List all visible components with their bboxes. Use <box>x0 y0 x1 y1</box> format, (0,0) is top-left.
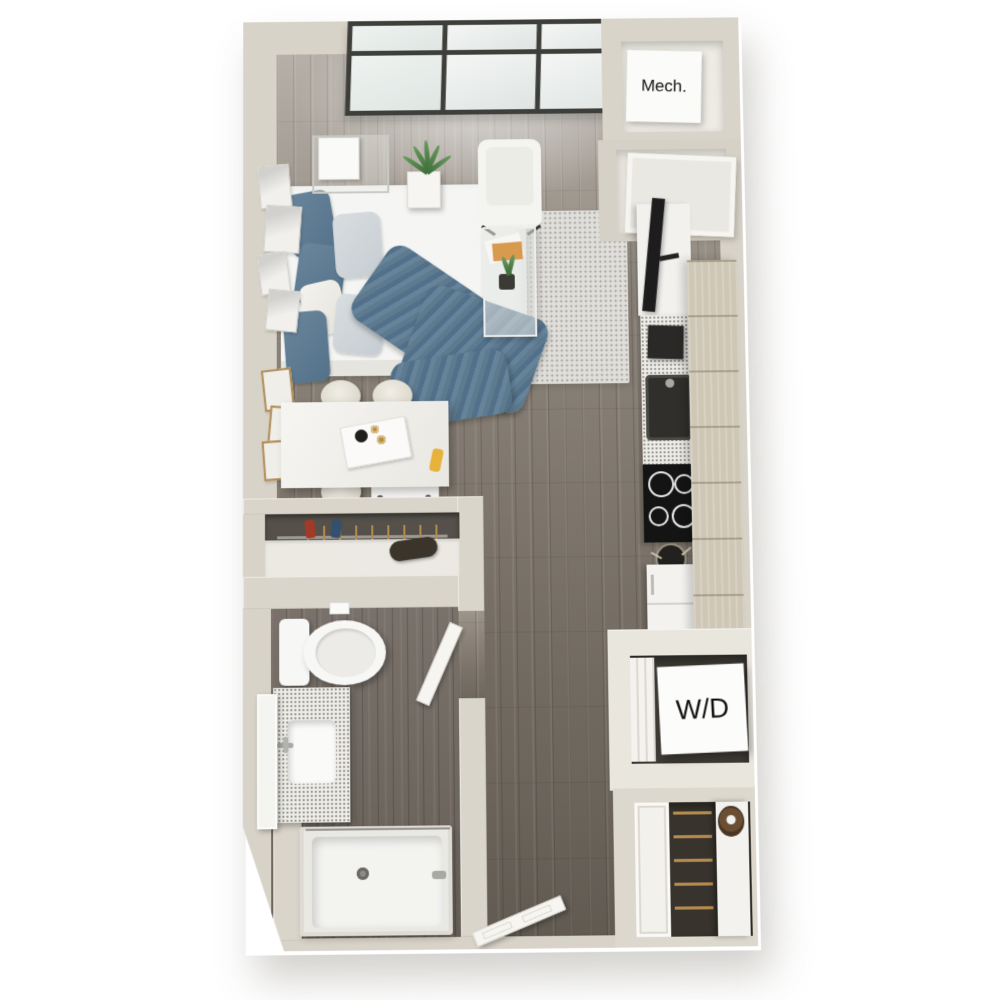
mechanical-closet-label: Mech. <box>641 76 687 96</box>
wall-art-frame <box>263 205 302 254</box>
potted-plant-pot <box>407 171 441 208</box>
wall-art-frame <box>257 164 292 210</box>
window-pane <box>447 24 538 50</box>
bifold-door <box>630 658 656 762</box>
window-pane <box>445 54 536 110</box>
mirror <box>257 694 277 829</box>
upper-cabinets <box>687 260 745 653</box>
table-lamp <box>318 137 360 180</box>
washer-dryer-unit: W/D <box>657 663 748 755</box>
toilet-paper-holder <box>329 602 349 614</box>
coat-hangers <box>673 808 714 930</box>
bathtub-basin <box>312 836 443 928</box>
window-pane <box>350 55 442 111</box>
kitchen-faucet <box>665 379 674 388</box>
burner <box>648 471 674 497</box>
wreath <box>718 806 745 837</box>
vanity-faucet <box>283 737 288 753</box>
coffee-maker <box>647 325 683 359</box>
mechanical-unit: Mech. <box>626 50 702 123</box>
washer-dryer-label: W/D <box>675 692 730 726</box>
magazine <box>492 241 523 261</box>
bathroom-door-opening <box>458 611 485 699</box>
drinking-glass <box>371 425 379 433</box>
coat-closet-door-open <box>634 802 671 937</box>
wall <box>457 496 487 937</box>
bottle <box>355 429 368 442</box>
apartment-floorplan: Mech. <box>243 17 758 951</box>
window-pane <box>352 25 443 51</box>
drinking-glass <box>377 435 386 444</box>
tub-faucet <box>432 871 446 879</box>
red-garment <box>304 519 316 538</box>
window-wall <box>345 18 637 115</box>
burner <box>649 506 669 526</box>
refrigerator-handle <box>651 575 654 595</box>
window-panes <box>350 23 632 111</box>
blue-garment <box>330 519 341 538</box>
refrigerator-door-seam <box>647 602 699 605</box>
armchair <box>478 139 542 229</box>
floorplan-canvas: Mech. <box>0 0 1000 1000</box>
wall <box>243 574 484 609</box>
wall <box>273 815 302 941</box>
tub-drain <box>357 867 369 880</box>
wall-art-frame <box>265 289 301 333</box>
armchair-seat <box>486 147 534 206</box>
vanity-sink <box>287 720 336 784</box>
